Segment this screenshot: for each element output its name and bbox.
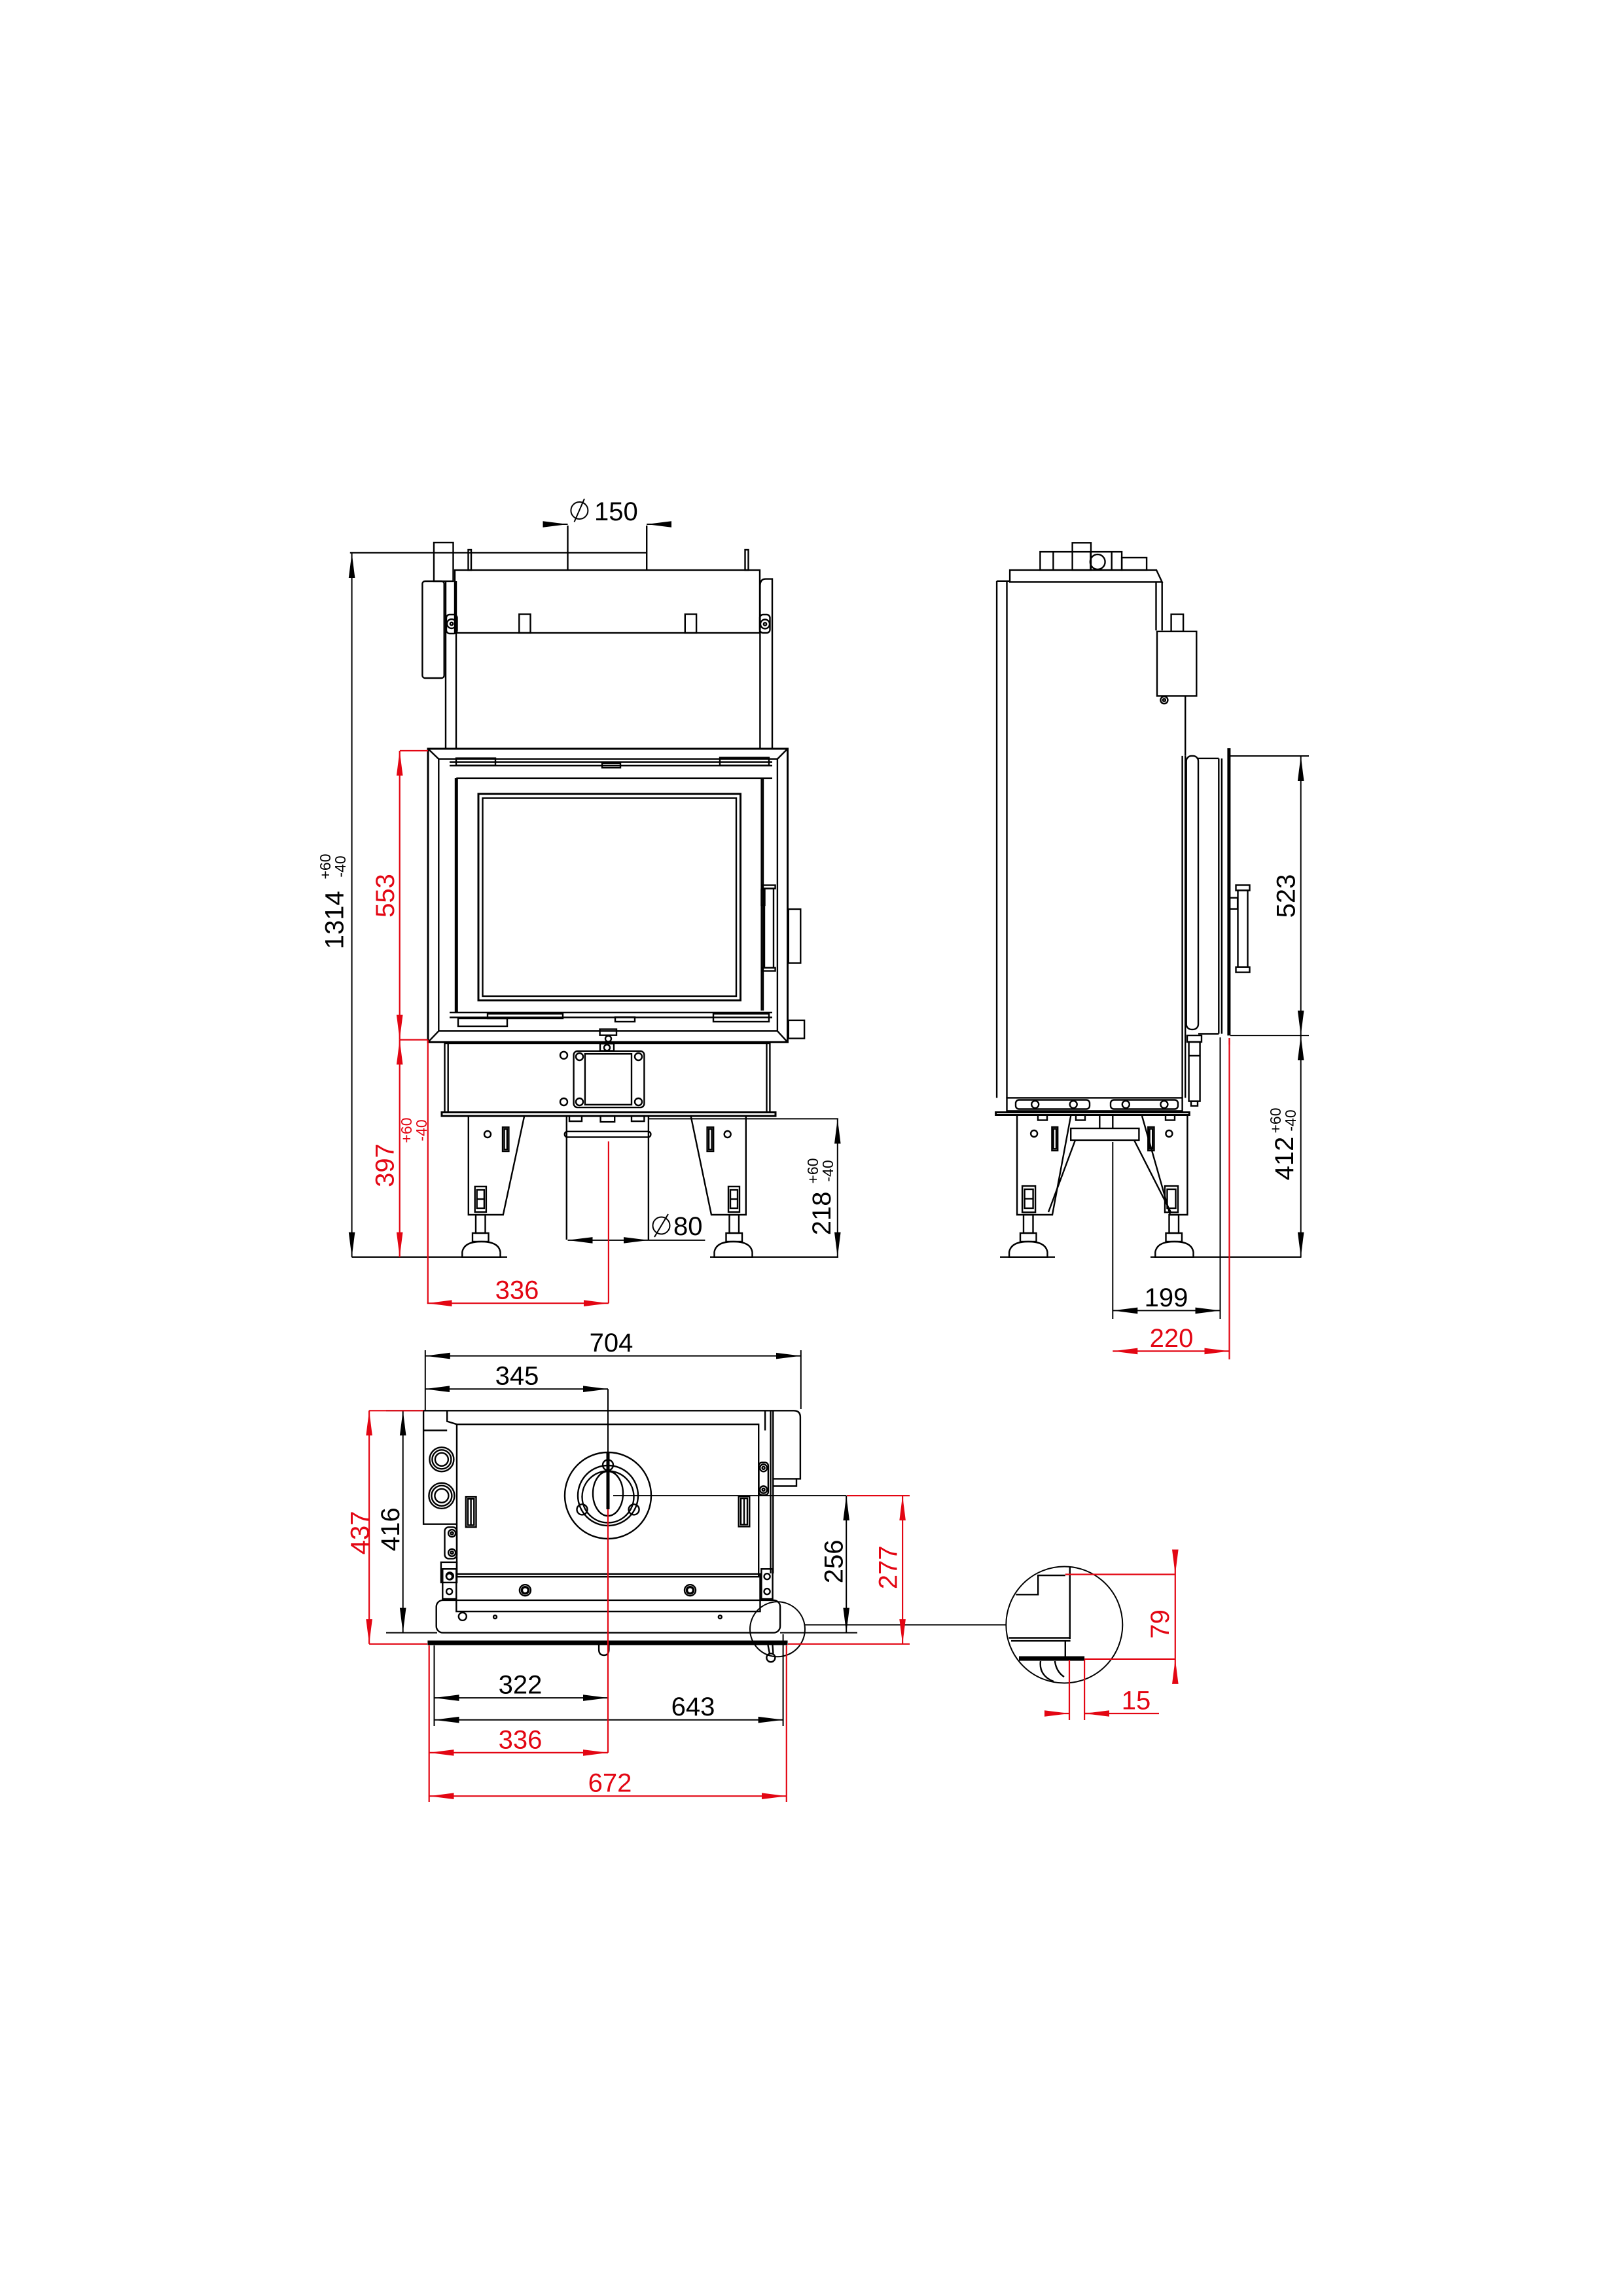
svg-text:322: 322	[499, 1671, 543, 1700]
svg-text:336: 336	[495, 1276, 539, 1305]
svg-text:397: 397	[371, 1143, 400, 1187]
svg-text:220: 220	[1150, 1324, 1194, 1353]
svg-text:643: 643	[671, 1693, 715, 1721]
svg-text:412: 412	[1270, 1137, 1299, 1181]
svg-text:218: 218	[808, 1192, 836, 1236]
svg-text:79: 79	[1146, 1609, 1175, 1639]
svg-text:256: 256	[819, 1540, 848, 1584]
svg-text:336: 336	[499, 1725, 543, 1754]
svg-text:-40: -40	[819, 1160, 836, 1181]
svg-text:672: 672	[588, 1769, 632, 1798]
svg-text:416: 416	[376, 1507, 405, 1551]
svg-text:-40: -40	[1282, 1109, 1299, 1131]
svg-text:15: 15	[1122, 1687, 1151, 1715]
svg-text:523: 523	[1272, 874, 1301, 918]
svg-text:80: 80	[673, 1212, 703, 1241]
svg-text:277: 277	[874, 1545, 902, 1589]
svg-text:-40: -40	[332, 855, 349, 877]
svg-text:150: 150	[594, 497, 638, 526]
svg-text:199: 199	[1145, 1283, 1188, 1312]
svg-text:553: 553	[371, 874, 400, 918]
svg-text:345: 345	[495, 1362, 539, 1391]
svg-text:704: 704	[590, 1329, 633, 1357]
svg-text:437: 437	[346, 1511, 375, 1555]
svg-text:1314: 1314	[321, 891, 349, 949]
